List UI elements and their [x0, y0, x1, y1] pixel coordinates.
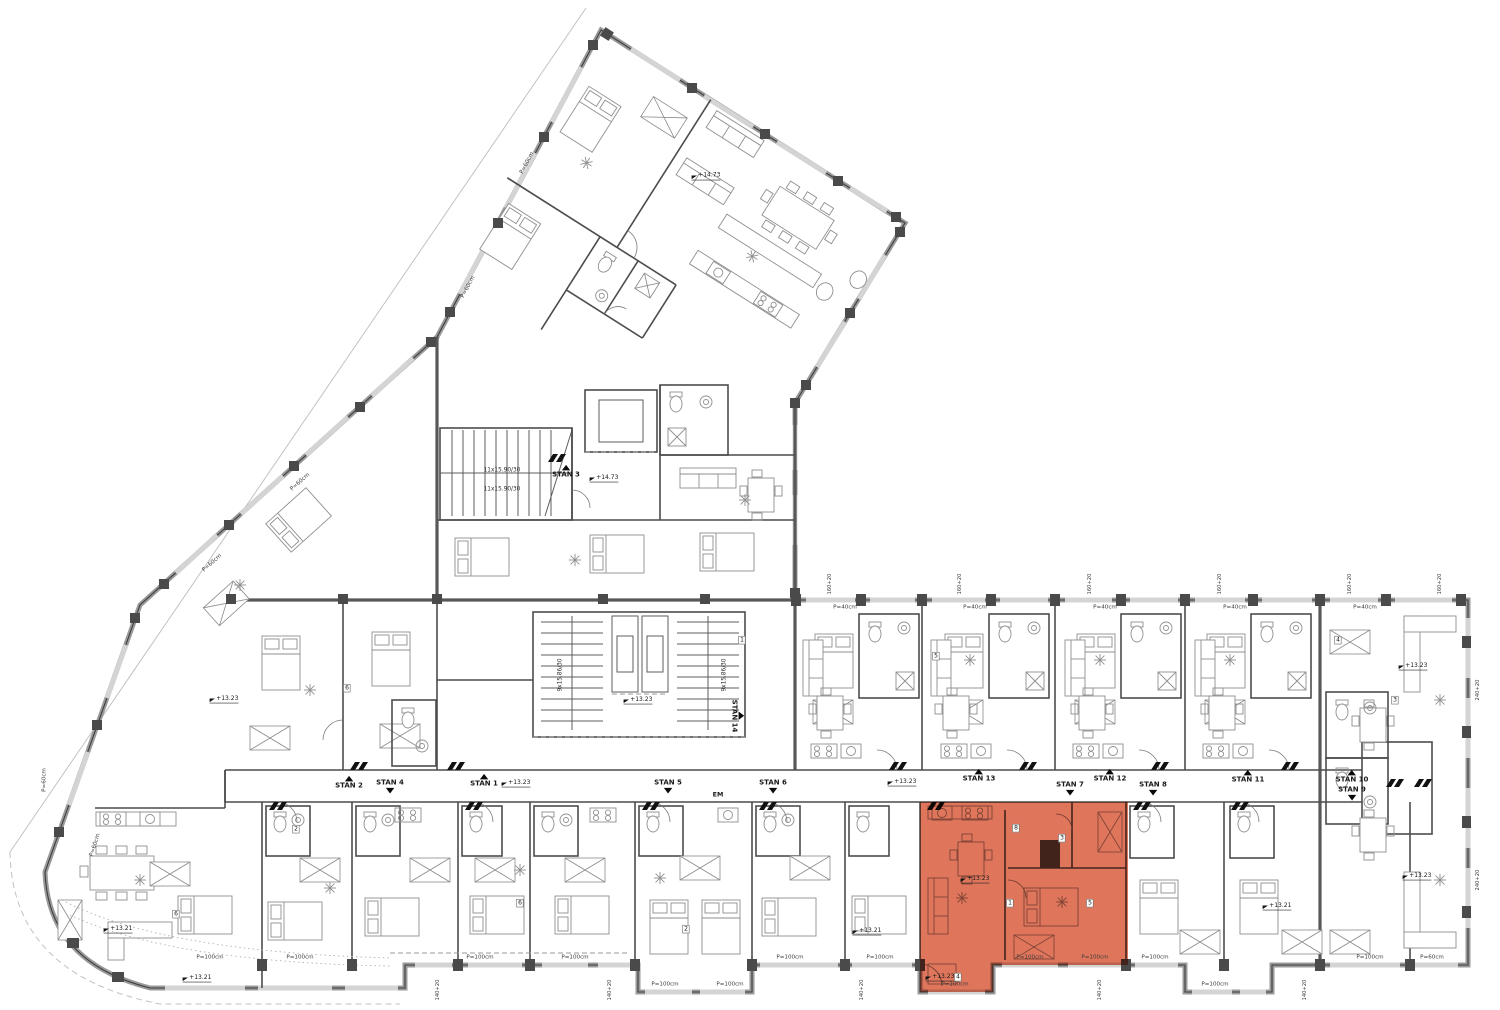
elevation-marker: +13.23: [210, 695, 239, 703]
elevation-flag-icon: [853, 930, 858, 934]
stan-marker-stan-10[interactable]: STAN 10: [1336, 770, 1369, 784]
elevation-marker: +13.23: [1403, 872, 1432, 880]
elevation-flag-icon: [1263, 905, 1268, 909]
room-number-tag: 1: [1006, 899, 1013, 907]
stan-marker-stan-14[interactable]: STAN 14: [730, 700, 744, 733]
sill-height-label: P=60cm: [41, 768, 47, 792]
stan-marker-stan-7[interactable]: STAN 7: [1056, 781, 1084, 795]
sill-height-label: P=100cm: [1016, 954, 1043, 960]
stan-label: STAN 5: [654, 779, 682, 787]
sill-height-label: P=100cm: [716, 981, 743, 987]
elevation-flag-icon: [961, 878, 966, 882]
elevation-marker: +13.23: [502, 779, 531, 787]
stan-marker-stan-12[interactable]: STAN 12: [1094, 769, 1127, 783]
stan-marker-stan-13[interactable]: STAN 13: [963, 769, 996, 783]
sill-height-label: P=100cm: [776, 954, 803, 960]
stair-run-label: 9x15.86/30: [721, 658, 728, 691]
apartment-entrance-arrow-icon: [1348, 795, 1356, 801]
stan-marker-stan-11[interactable]: STAN 11: [1232, 770, 1265, 784]
room-number-tag: 1: [738, 636, 745, 644]
elevation-marker: +13.23: [961, 875, 990, 883]
elevation-flag-icon: [502, 782, 507, 786]
stan-marker-stan-6[interactable]: STAN 6: [759, 779, 787, 793]
room-number-tag: 4: [1334, 636, 1341, 644]
floor-plan-page: STAN 1STAN 2STAN 3STAN 4STAN 5STAN 6STAN…: [0, 0, 1500, 1010]
apartment-entrance-arrow-icon: [664, 788, 672, 794]
sill-height-label: P=100cm: [196, 954, 223, 960]
stan-marker-stan-3[interactable]: STAN 3: [552, 465, 580, 479]
room-number-tag: 8: [1012, 824, 1019, 832]
stan-label: STAN 11: [1232, 776, 1265, 784]
room-number-tag: 4: [954, 973, 961, 981]
sill-height-label: P=100cm: [941, 981, 968, 987]
room-number-tag: 2: [292, 825, 299, 833]
sill-height-label: P=60cm: [460, 275, 477, 299]
stan-label: STAN 2: [335, 782, 363, 790]
sill-height-label: P=100cm: [1356, 954, 1383, 960]
apartment-entrance-arrow-icon: [769, 788, 777, 794]
elevation-marker: +13.23: [624, 696, 653, 704]
stan-label: STAN 13: [963, 775, 996, 783]
apartment-entrance-arrow-icon: [345, 776, 353, 782]
elevation-flag-icon: [1399, 665, 1404, 669]
stan-marker-stan-4[interactable]: STAN 4: [376, 779, 404, 793]
stan-label: STAN 12: [1094, 775, 1127, 783]
dimension-label: 160+20: [1437, 574, 1443, 595]
room-number-tag: 5: [1086, 899, 1093, 907]
elevation-flag-icon: [183, 977, 188, 981]
dimension-label: 140+20: [859, 980, 865, 1001]
stan-label: STAN 7: [1056, 781, 1084, 789]
stair-run-label: 9x15.86/30: [557, 658, 564, 691]
apartment-entrance-arrow-icon: [739, 712, 745, 720]
stan-marker-stan-5[interactable]: STAN 5: [654, 779, 682, 793]
stan-label: STAN 9: [1338, 786, 1366, 794]
elevation-flag-icon: [104, 928, 109, 932]
apartment-entrance-arrow-icon: [480, 774, 488, 780]
apartment-entrance-arrow-icon: [1066, 790, 1074, 796]
elevation-flag-icon: [1403, 875, 1408, 879]
stan-label: STAN 10: [1336, 776, 1369, 784]
elevation-flag-icon: [624, 699, 629, 703]
sill-height-label: P=60cm: [289, 472, 311, 493]
sill-height-label: P=40cm: [1093, 604, 1117, 610]
sill-height-label: P=100cm: [466, 954, 493, 960]
elevation-marker: +13.23: [888, 778, 917, 786]
elevation-marker: +13.21: [1263, 902, 1292, 910]
sill-height-label: P=100cm: [286, 954, 313, 960]
label-layer: STAN 1STAN 2STAN 3STAN 4STAN 5STAN 6STAN…: [0, 0, 1500, 1010]
elevation-flag-icon: [210, 698, 215, 702]
room-number-tag: 5: [932, 652, 939, 660]
sill-height-label: P=40cm: [833, 604, 857, 610]
stan-marker-stan-1[interactable]: STAN 1: [470, 774, 498, 788]
sill-height-label: P=40cm: [1223, 604, 1247, 610]
sill-height-label: P=100cm: [866, 954, 893, 960]
apartment-entrance-arrow-icon: [386, 788, 394, 794]
stair-run-label: 11x15.90/30: [484, 486, 521, 493]
apartment-entrance-arrow-icon: [1106, 769, 1114, 775]
sill-height-label: P=40cm: [963, 604, 987, 610]
dimension-label: 240+20: [1475, 680, 1481, 701]
room-number-tag: 3: [1058, 834, 1065, 842]
stan-label: STAN 1: [470, 780, 498, 788]
elevation-flag-icon: [888, 781, 893, 785]
sill-height-label: P=100cm: [1201, 981, 1228, 987]
stan-marker-stan-8[interactable]: STAN 8: [1139, 781, 1167, 795]
elevation-marker: +13.21: [104, 925, 133, 933]
stan-label: STAN 8: [1139, 781, 1167, 789]
dimension-label: 160+20: [827, 574, 833, 595]
dimension-label: 140+20: [1097, 980, 1103, 1001]
apartment-entrance-arrow-icon: [975, 769, 983, 775]
apartment-entrance-arrow-icon: [1149, 790, 1157, 796]
elevation-marker: +13.21: [183, 974, 212, 982]
sill-height-label: P=100cm: [1141, 954, 1168, 960]
elevation-marker: +14.73: [590, 474, 619, 482]
apartment-entrance-arrow-icon: [562, 465, 570, 471]
elevation-flag-icon: [590, 477, 595, 481]
stan-label: STAN 6: [759, 779, 787, 787]
elevation-flag-icon: [692, 175, 697, 179]
room-number-tag: 6: [172, 910, 179, 918]
room-number-tag: 6: [516, 899, 523, 907]
dimension-label: 160+20: [1217, 574, 1223, 595]
dimension-label: 240+20: [1475, 870, 1481, 891]
stair-run-label: 11x15.90/30: [484, 467, 521, 474]
stan-label: STAN 3: [552, 471, 580, 479]
electrical-meter-label: EM: [713, 791, 724, 798]
room-number-tag: 3: [1391, 696, 1398, 704]
sill-height-label: P=100cm: [651, 981, 678, 987]
room-number-tag: 2: [682, 925, 689, 933]
elevation-marker: +13.23: [926, 973, 955, 981]
elevation-flag-icon: [926, 976, 931, 980]
sill-height-label: P=60cm: [201, 553, 223, 574]
elevation-marker: +13.23: [1399, 662, 1428, 670]
stan-marker-stan-9[interactable]: STAN 9: [1338, 786, 1366, 800]
stan-marker-stan-2[interactable]: STAN 2: [335, 776, 363, 790]
stan-label: STAN 4: [376, 779, 404, 787]
dimension-label: 160+20: [1347, 574, 1353, 595]
elevation-marker: +14.73: [692, 172, 721, 180]
stan-label: STAN 14: [730, 700, 738, 733]
dimension-label: 140+20: [607, 980, 613, 1001]
sill-height-label: P=60cm: [88, 833, 101, 858]
elevation-marker: +13.21: [853, 927, 882, 935]
sill-height-label: P=100cm: [1081, 954, 1108, 960]
dimension-label: 140+20: [1302, 980, 1308, 1001]
room-number-tag: 6: [343, 684, 350, 692]
dimension-label: 160+20: [957, 574, 963, 595]
dimension-label: 140+20: [435, 980, 441, 1001]
sill-height-label: P=100cm: [561, 954, 588, 960]
sill-height-label: P=60cm: [1420, 954, 1444, 960]
dimension-label: 160+20: [1087, 574, 1093, 595]
sill-height-label: P=60cm: [519, 151, 536, 175]
apartment-entrance-arrow-icon: [1348, 770, 1356, 776]
apartment-entrance-arrow-icon: [1244, 770, 1252, 776]
sill-height-label: P=40cm: [1353, 604, 1377, 610]
